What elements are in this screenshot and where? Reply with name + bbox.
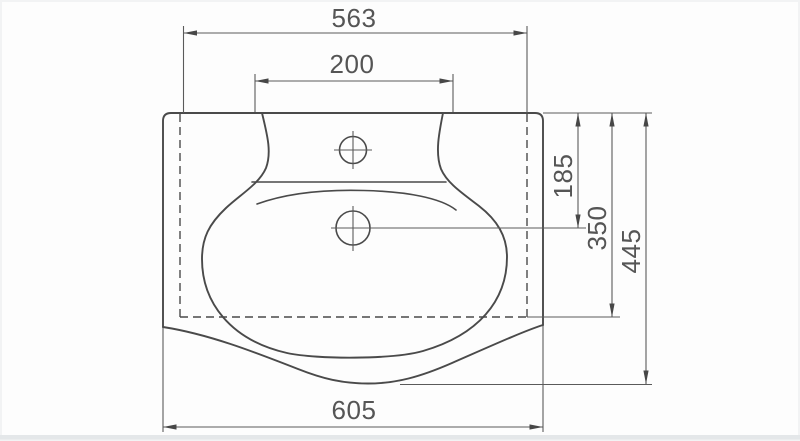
technical-drawing: 563 200 605 185 <box>0 0 800 441</box>
dimension-mount-depth: 350 <box>527 113 620 317</box>
dimension-label-605: 605 <box>332 395 377 425</box>
arrowhead-left <box>255 78 269 83</box>
dimension-faucet-platform-width: 200 <box>255 49 453 112</box>
drain-hole-mark <box>331 206 586 251</box>
dimension-label-563: 563 <box>332 3 377 33</box>
arrowhead-top <box>643 113 648 127</box>
arrowhead-top <box>575 113 580 127</box>
arrowhead-right <box>530 424 544 429</box>
basin-inner-edge-curve <box>257 190 456 210</box>
dimension-drain-center-depth: 185 <box>548 113 581 228</box>
arrowhead-left <box>163 424 177 429</box>
dimension-label-200: 200 <box>330 49 375 79</box>
arrowhead-top <box>609 113 614 127</box>
dimension-label-350: 350 <box>582 206 612 251</box>
arrowhead-right <box>440 78 454 83</box>
dimension-label-185: 185 <box>548 154 578 199</box>
arrowhead-bottom <box>575 215 580 229</box>
arrowhead-bottom <box>609 304 614 318</box>
bottom-border-strip <box>0 435 800 440</box>
arrowhead-right <box>514 30 528 35</box>
sink-apron-curve <box>163 325 543 384</box>
dimension-bottom-width: 605 <box>163 326 543 432</box>
arrowhead-bottom <box>643 371 648 385</box>
dimension-label-445: 445 <box>616 229 646 274</box>
faucet-hole-mark <box>334 131 372 169</box>
washbasin-technical-drawing-page: 563 200 605 185 <box>0 0 800 441</box>
arrowhead-left <box>184 30 198 35</box>
